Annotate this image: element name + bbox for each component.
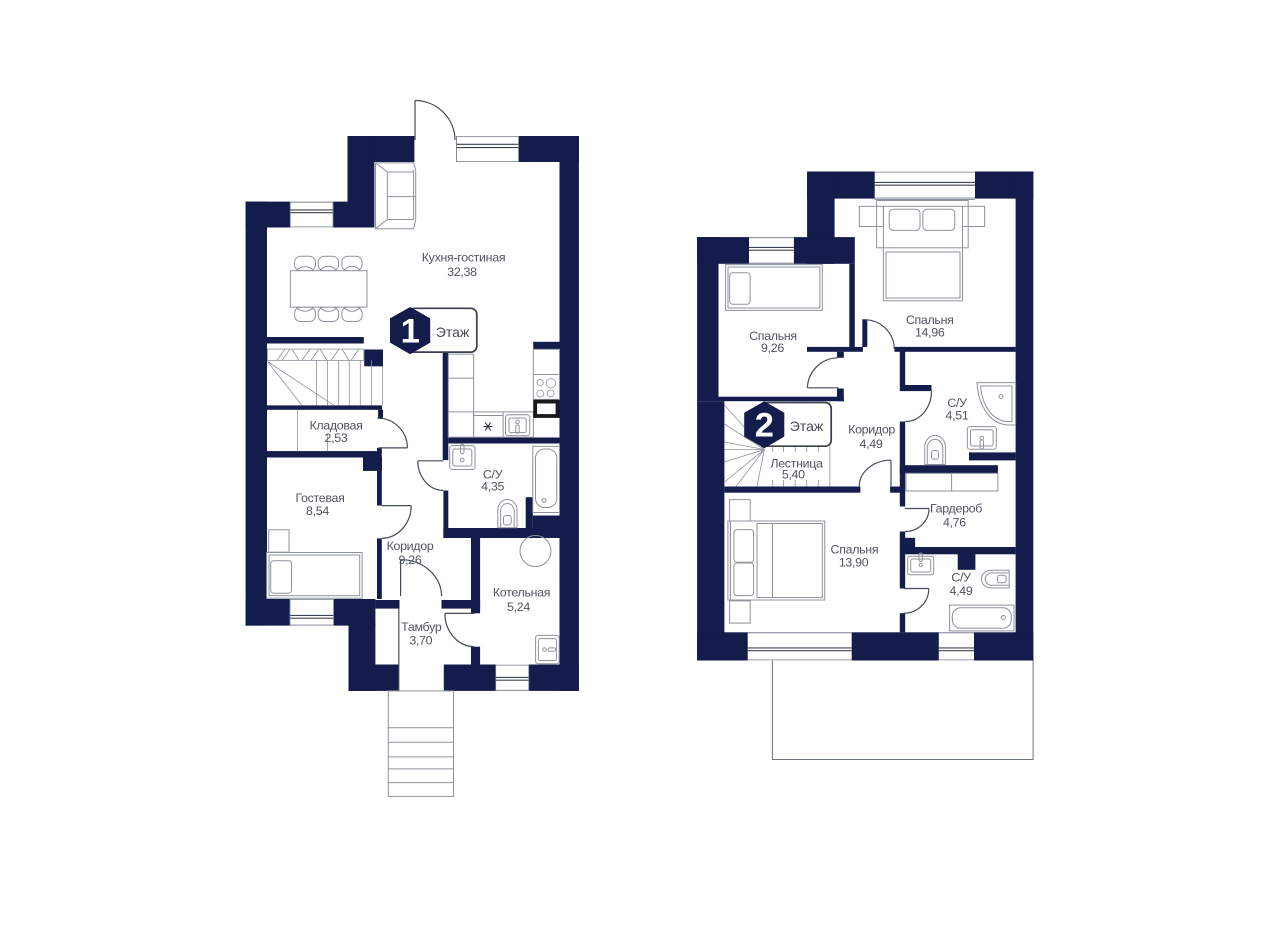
svg-text:Этаж: Этаж	[436, 324, 470, 340]
svg-text:1: 1	[401, 313, 420, 351]
svg-text:Коридор: Коридор	[387, 539, 434, 553]
svg-text:Коридор: Коридор	[848, 423, 895, 437]
svg-text:14,96: 14,96	[915, 326, 945, 340]
svg-text:32,38: 32,38	[447, 265, 477, 279]
svg-text:3,70: 3,70	[409, 634, 432, 648]
svg-text:5,40: 5,40	[782, 468, 805, 482]
svg-text:Гардероб: Гардероб	[930, 501, 982, 515]
svg-text:13,90: 13,90	[839, 555, 869, 569]
svg-text:Этаж: Этаж	[790, 418, 824, 434]
svg-text:С/У: С/У	[951, 571, 971, 585]
svg-text:Тамбур: Тамбур	[401, 620, 442, 634]
svg-text:9,26: 9,26	[761, 341, 784, 355]
svg-text:Кухня-гостиная: Кухня-гостиная	[422, 251, 505, 265]
svg-text:8,54: 8,54	[306, 504, 329, 518]
svg-text:2,53: 2,53	[325, 431, 348, 445]
svg-text:4,76: 4,76	[943, 516, 966, 530]
svg-text:5,24: 5,24	[507, 600, 530, 614]
svg-text:Спальня: Спальня	[831, 542, 879, 556]
svg-text:9,26: 9,26	[399, 553, 422, 567]
svg-text:Котельная: Котельная	[493, 586, 550, 600]
svg-text:2: 2	[755, 406, 774, 444]
svg-text:4,49: 4,49	[950, 584, 973, 598]
svg-text:4,51: 4,51	[946, 409, 969, 423]
svg-text:4,49: 4,49	[860, 437, 883, 451]
svg-text:4,35: 4,35	[481, 480, 504, 494]
